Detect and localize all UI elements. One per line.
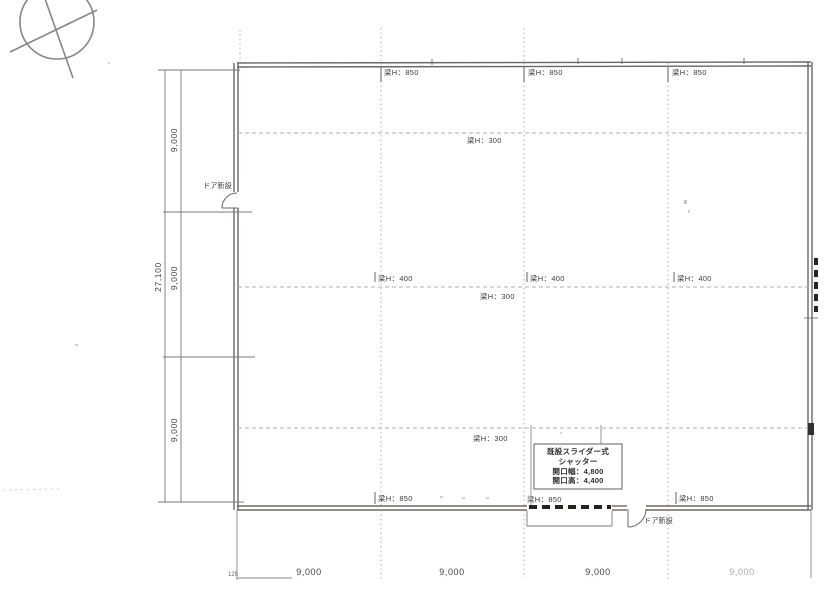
scan-noise <box>3 62 690 499</box>
dim-left-seg2: 9,000 <box>169 266 179 290</box>
wall-top-outer <box>237 62 811 63</box>
beam-label-bottom-center: 梁H：850 <box>527 495 562 504</box>
bottom-door-label: ドア新設 <box>644 516 673 525</box>
floor-plan-canvas: 梁H：850 梁H：850 梁H：850 梁H：300 梁H：400 梁H：40… <box>0 0 832 592</box>
bottom-dimension-labels: 9,000 9,000 9,000 9,000 125 <box>228 567 755 578</box>
dim-bottom-1: 9,000 <box>296 567 322 577</box>
dim-corner-note: 125 <box>228 572 239 578</box>
beam-label-bottom-right: 梁H：850 <box>679 494 714 503</box>
right-wall-features <box>804 258 818 435</box>
floor-plan-drawing: 梁H：850 梁H：850 梁H：850 梁H：300 梁H：400 梁H：40… <box>0 0 832 592</box>
shutter-recess <box>527 511 612 526</box>
beam-label-top-center: 梁H：850 <box>528 68 563 77</box>
shutter-note-line1: 既設スライダー式 <box>547 446 609 456</box>
beam-label-mid-center-400: 梁H：400 <box>530 274 565 283</box>
shutter-note-line3: 開口幅：4,800 <box>552 466 603 476</box>
dim-bottom-2: 9,000 <box>439 567 465 577</box>
right-wall-mark <box>808 423 814 435</box>
left-door-swing-arc <box>222 193 237 208</box>
beam-label-mid-right-400: 梁H：400 <box>677 274 712 283</box>
shutter-note-line4: 開口高：4,400 <box>552 475 603 485</box>
beam-label-top-left: 梁H：850 <box>384 68 419 77</box>
beam-label-row1-300: 梁H：300 <box>467 136 502 145</box>
beam-label-row3-300: 梁H：300 <box>473 434 508 443</box>
shutter-note-line2: シャッター <box>559 456 598 466</box>
dim-bottom-4: 9,000 <box>729 567 755 577</box>
north-symbol <box>10 0 97 78</box>
building-walls <box>234 62 812 510</box>
beam-label-mid-300: 梁H：300 <box>480 292 515 301</box>
column-grid <box>240 28 668 580</box>
dim-left-seg3: 9,000 <box>169 418 179 442</box>
shutter-assembly: 既設スライダー式 シャッター 開口幅：4,800 開口高：4,400 <box>527 425 622 526</box>
wall-top-inner <box>237 66 811 67</box>
north-symbol-line-2 <box>44 0 73 78</box>
beam-label-mid-left-400: 梁H：400 <box>378 274 413 283</box>
north-symbol-line-1 <box>10 10 97 52</box>
left-dimension-labels: 27,100 9,000 9,000 9,000 <box>153 128 179 442</box>
beam-label-top-right: 梁H：850 <box>672 68 707 77</box>
dim-left-total: 27,100 <box>153 262 163 292</box>
dim-left-seg1: 9,000 <box>169 128 179 152</box>
left-door-label: ドア新設 <box>203 181 232 190</box>
left-door <box>222 193 238 208</box>
beam-label-bottom-left: 梁H：850 <box>378 494 413 503</box>
dim-bottom-3: 9,000 <box>585 567 611 577</box>
beam-lines <box>238 133 812 428</box>
